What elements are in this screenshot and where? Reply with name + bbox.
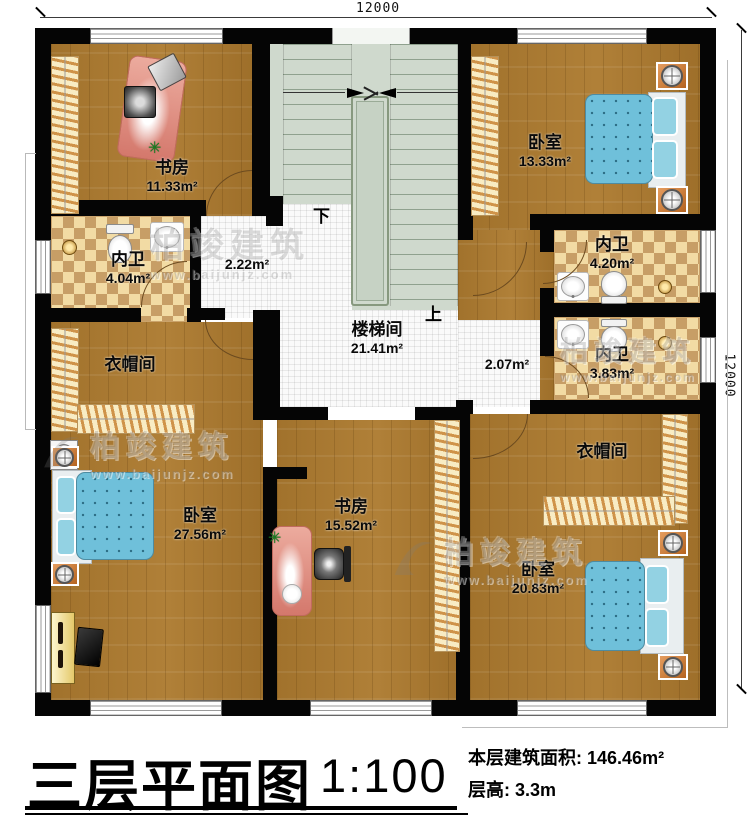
stair-break-arrow-icon	[379, 88, 396, 98]
room-label-hall-left: 2.22m²	[225, 256, 269, 272]
wall	[190, 216, 201, 308]
room-name: 书房	[325, 497, 377, 517]
wall	[252, 44, 270, 216]
wall	[266, 196, 283, 226]
window	[517, 28, 647, 44]
dimension-tick	[706, 7, 717, 18]
window	[35, 605, 51, 693]
room-label-study-bottom: 书房 15.52m²	[325, 497, 377, 533]
wardrobe	[77, 404, 195, 434]
plant-icon: ✳	[148, 138, 161, 158]
stair-break-line	[283, 92, 345, 93]
dimension-line-top	[40, 17, 712, 18]
room-name: 书房	[146, 158, 197, 178]
floor-area-label: 本层建筑面积:	[468, 748, 582, 768]
floor-area-row: 本层建筑面积: 146.46m²	[468, 743, 664, 775]
stair-top-opening	[332, 28, 410, 44]
lamp-icon	[55, 565, 74, 584]
stair-up-label: 上	[425, 300, 442, 325]
room-area: 20.83m²	[512, 580, 564, 596]
pillow	[56, 476, 76, 514]
plant-icon: ✳	[268, 528, 281, 548]
floor-height-row: 层高: 3.3m	[468, 775, 664, 807]
room-area: 2.07m²	[485, 356, 529, 372]
stair-break-arrow-icon	[347, 88, 364, 98]
floor-plan-page: ✳ ✳	[0, 0, 750, 834]
room-label-bedroom-topright: 卧室 13.33m²	[519, 133, 571, 169]
wardrobe	[51, 328, 79, 432]
room-label-hall-right: 2.07m²	[485, 356, 529, 372]
dimension-tick	[35, 7, 46, 18]
room-area: 27.56m²	[174, 526, 226, 542]
decor-bottle-icon	[58, 622, 63, 644]
office-chair	[344, 546, 351, 582]
dimension-value-top: 12000	[356, 1, 400, 16]
room-area: 21.41m²	[351, 340, 403, 356]
room-name: 内卫	[106, 250, 150, 270]
room-name: 卧室	[519, 133, 571, 153]
wall	[253, 310, 280, 420]
room-label-closet-right: 衣帽间	[577, 442, 628, 462]
wall	[280, 407, 328, 420]
room-label-study-top: 书房 11.33m²	[146, 158, 197, 194]
wall	[415, 407, 458, 420]
room-area: 2.22m²	[225, 256, 269, 272]
stair-center-rail	[351, 96, 389, 306]
room-area: 4.20m²	[590, 255, 634, 271]
room-name: 内卫	[590, 345, 634, 365]
computer-monitor-icon	[124, 86, 156, 118]
floor-area-value: 146.46m²	[587, 748, 664, 768]
stair-flight-right	[390, 44, 458, 306]
stair-down-label: 下	[313, 202, 330, 227]
wardrobe	[51, 56, 79, 214]
window	[35, 240, 51, 294]
wall	[187, 308, 201, 322]
room-name: 卧室	[512, 560, 564, 580]
wall	[201, 308, 225, 320]
room-label-bath-right-mid: 内卫 3.83m²	[590, 345, 634, 381]
eave-outline	[25, 153, 36, 430]
stair-break-line	[397, 92, 458, 93]
room-name: 卧室	[174, 506, 226, 526]
eave-outline	[462, 60, 728, 728]
room-area: 15.52m²	[325, 517, 377, 533]
room-label-stairwell: 楼梯间 21.41m²	[351, 320, 403, 356]
drain-icon	[62, 240, 77, 255]
pillow	[56, 518, 76, 556]
toilet	[106, 224, 134, 234]
plan-info: 本层建筑面积: 146.46m² 层高: 3.3m	[468, 743, 664, 806]
window	[90, 28, 223, 44]
office-chair	[314, 548, 344, 580]
wardrobe	[434, 420, 460, 652]
window	[90, 700, 222, 716]
room-label-bath-right-top: 内卫 4.20m²	[590, 235, 634, 271]
title-underline	[25, 813, 468, 815]
room-name: 楼梯间	[351, 320, 403, 340]
wall	[35, 308, 141, 322]
room-area: 11.33m²	[146, 178, 197, 194]
dimension-line-right	[741, 30, 742, 690]
decor-bottle-icon	[58, 650, 63, 668]
room-area: 13.33m²	[519, 153, 571, 169]
room-label-bedroom-bottomright: 卧室 20.83m²	[512, 560, 564, 596]
table-lamp-icon	[282, 584, 302, 604]
room-label-bath-left: 内卫 4.04m²	[106, 250, 150, 286]
window	[310, 700, 432, 716]
floor-height-value: 3.3m	[515, 780, 556, 800]
room-label-bedroom-bottomleft: 卧室 27.56m²	[174, 506, 226, 542]
bed	[76, 472, 154, 560]
tv-icon	[74, 627, 104, 668]
floor-height-label: 层高:	[468, 780, 510, 800]
stair-flight-left	[283, 44, 352, 204]
sink	[150, 222, 184, 252]
lamp-icon	[55, 448, 74, 467]
room-name: 内卫	[590, 235, 634, 255]
room-area: 3.83m²	[590, 365, 634, 381]
room-name: 衣帽间	[105, 355, 156, 375]
title-underline	[25, 806, 457, 810]
tv-cabinet	[51, 612, 75, 684]
room-name: 衣帽间	[577, 442, 628, 462]
room-area: 4.04m²	[106, 270, 150, 286]
plan-scale: 1:100	[320, 748, 448, 803]
room-label-closet-left: 衣帽间	[105, 355, 156, 375]
